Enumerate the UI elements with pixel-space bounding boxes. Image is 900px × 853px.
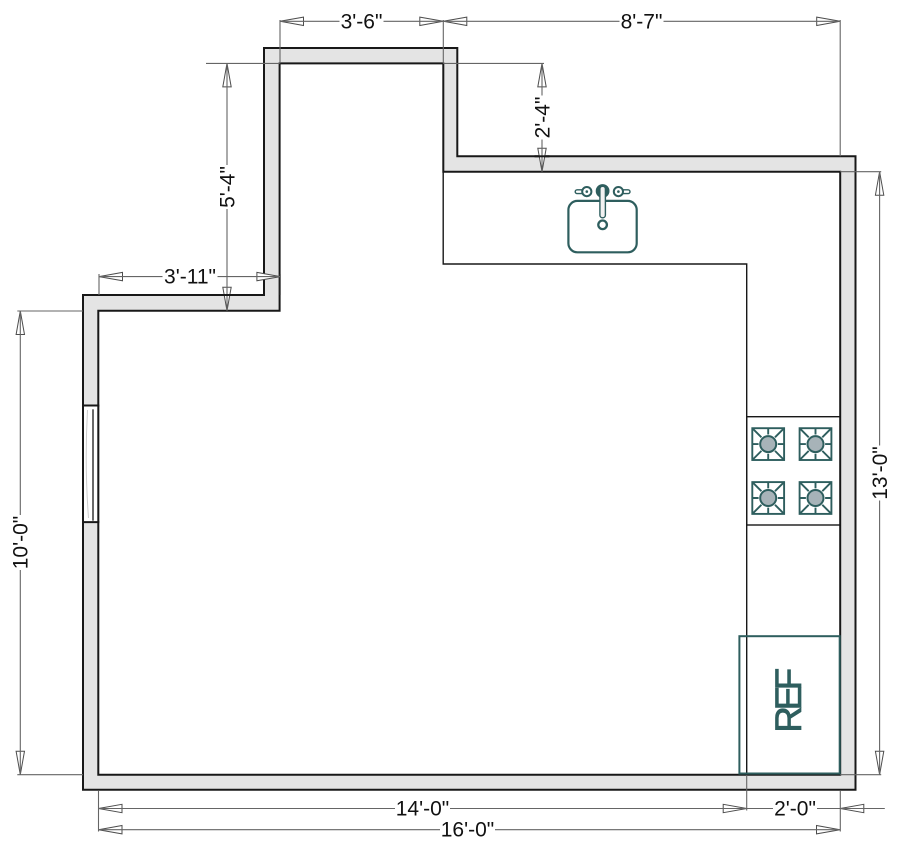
svg-text:8'-7": 8'-7" bbox=[621, 10, 663, 33]
svg-text:10'-0": 10'-0" bbox=[10, 516, 33, 570]
svg-text:5'-4": 5'-4" bbox=[216, 166, 239, 208]
svg-text:14'-0": 14'-0" bbox=[396, 798, 450, 821]
svg-text:16'-0": 16'-0" bbox=[441, 819, 495, 842]
svg-text:REF: REF bbox=[768, 668, 809, 732]
svg-text:2'-0": 2'-0" bbox=[774, 798, 816, 821]
svg-text:3'-6": 3'-6" bbox=[341, 10, 383, 33]
svg-text:13'-0": 13'-0" bbox=[869, 446, 892, 500]
svg-text:2'-4": 2'-4" bbox=[531, 97, 554, 139]
svg-text:3'-11": 3'-11" bbox=[164, 266, 216, 289]
